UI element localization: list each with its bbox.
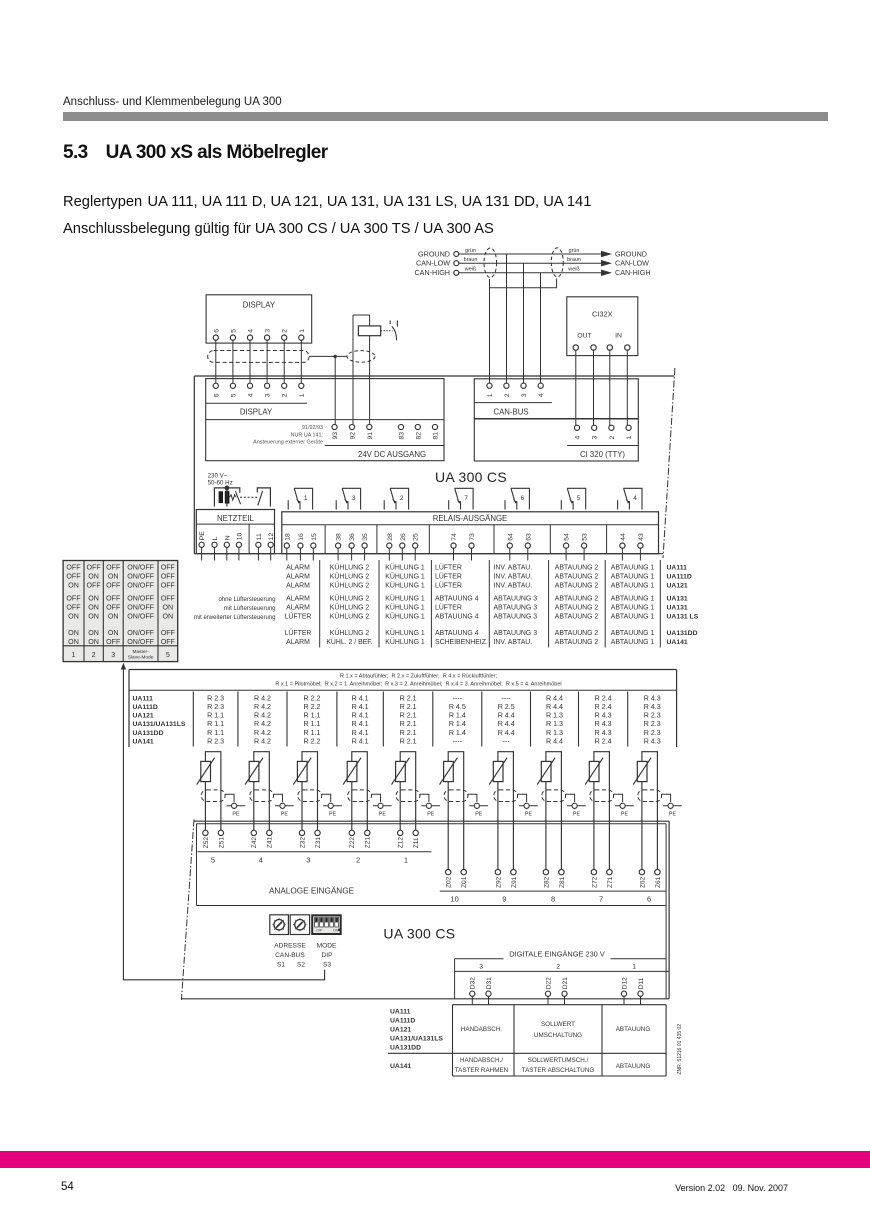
svg-text:OFF: OFF (161, 564, 176, 572)
svg-text:2: 2 (504, 393, 511, 397)
svg-text:R 4.2: R 4.2 (254, 737, 271, 745)
svg-text:2: 2 (92, 651, 96, 659)
svg-text:R 2.3: R 2.3 (644, 712, 661, 720)
svg-text:Z32: Z32 (299, 837, 306, 849)
svg-text:82: 82 (415, 432, 422, 440)
svg-text:OFF: OFF (161, 573, 176, 581)
svg-text:weiß: weiß (464, 267, 477, 273)
svg-text:OFF: OFF (66, 595, 81, 603)
svg-text:S3: S3 (323, 962, 331, 969)
svg-text:R 2.3: R 2.3 (644, 729, 661, 737)
svg-text:UA131DD: UA131DD (390, 1044, 421, 1051)
svg-text:2: 2 (400, 495, 404, 502)
svg-text:braun: braun (567, 257, 581, 263)
svg-text:OFF: OFF (106, 564, 121, 572)
svg-text:OFF: OFF (161, 595, 176, 603)
svg-text:ON: ON (68, 613, 79, 621)
svg-text:R 4.3: R 4.3 (644, 703, 661, 711)
svg-text:Z71: Z71 (607, 876, 614, 888)
svg-text:UA111D: UA111D (390, 1017, 415, 1024)
svg-text:R 2.3: R 2.3 (207, 694, 224, 702)
svg-text:R 4.4: R 4.4 (498, 712, 515, 720)
svg-text:ON: ON (88, 638, 99, 646)
svg-text:Z11: Z11 (413, 837, 420, 848)
svg-text:R 1.1: R 1.1 (207, 720, 224, 728)
svg-text:4: 4 (248, 329, 255, 333)
svg-text:9: 9 (502, 895, 506, 904)
svg-text:R 4.3: R 4.3 (644, 737, 661, 745)
svg-text:3: 3 (592, 436, 599, 440)
svg-text:KÜHLUNG 2: KÜHLUNG 2 (330, 573, 370, 581)
svg-text:PE: PE (281, 811, 289, 817)
svg-text:KÜHLUNG 1: KÜHLUNG 1 (385, 564, 425, 572)
svg-text:ohne Lüftersteuerung: ohne Lüftersteuerung (218, 597, 275, 603)
svg-text:2: 2 (282, 329, 289, 333)
svg-text:R 2.1: R 2.1 (400, 694, 417, 702)
svg-text:R 1.x = Abtaufühler; R 2.x =: R 1.x = Abtaufühler; R 2.x = Zuluftfühle… (340, 673, 497, 679)
svg-text:3: 3 (521, 393, 528, 397)
svg-text:Z72: Z72 (591, 876, 598, 888)
svg-text:3: 3 (265, 393, 272, 397)
svg-text:R x.1 = Pilotmöbel; R x.2 = 1: R x.1 = Pilotmöbel; R x.2 = 1. Anreihmöb… (275, 682, 561, 688)
svg-text:UA131 LS: UA131 LS (667, 614, 699, 621)
svg-text:ABTAUUNG 2: ABTAUUNG 2 (555, 605, 599, 612)
svg-text:R 4.3: R 4.3 (595, 720, 612, 728)
svg-text:R 2.5: R 2.5 (498, 703, 515, 711)
svg-text:3: 3 (352, 495, 356, 502)
svg-text:KÜHLUNG 1: KÜHLUNG 1 (385, 582, 425, 590)
svg-text:3: 3 (479, 964, 483, 971)
svg-text:HANDABSCH./: HANDABSCH./ (460, 1057, 503, 1064)
svg-text:UA111D: UA111D (667, 574, 692, 581)
svg-text:UA131/UA131LS: UA131/UA131LS (133, 721, 186, 728)
svg-text:grün: grün (569, 248, 580, 254)
svg-text:ON: ON (88, 604, 99, 612)
svg-text:CAN-LOW: CAN-LOW (416, 259, 450, 268)
svg-text:LÜFTER: LÜFTER (435, 573, 462, 581)
svg-text:ON: ON (108, 629, 119, 637)
svg-text:ALARM: ALARM (286, 639, 310, 646)
svg-text:UA121: UA121 (133, 713, 154, 720)
svg-text:KÜHLUNG 1: KÜHLUNG 1 (385, 638, 425, 646)
svg-text:ABTAUUNG 4: ABTAUUNG 4 (435, 596, 479, 603)
svg-text:Z12: Z12 (398, 837, 405, 849)
svg-text:ON/OFF: ON/OFF (127, 638, 154, 646)
svg-text:R 4.1: R 4.1 (352, 694, 369, 702)
svg-text:2: 2 (556, 964, 560, 971)
svg-text:UA141: UA141 (667, 639, 688, 646)
svg-text:ON: ON (88, 573, 99, 581)
svg-text:MODE: MODE (317, 942, 337, 949)
svg-text:R 2.1: R 2.1 (400, 737, 417, 745)
svg-text:Master-: Master- (132, 649, 149, 655)
svg-text:R 1.3: R 1.3 (546, 720, 563, 728)
svg-text:INV. ABTAU.: INV. ABTAU. (494, 574, 533, 581)
svg-text:CAN-HIGH: CAN-HIGH (414, 268, 450, 277)
svg-text:6: 6 (213, 393, 220, 397)
svg-text:Z52: Z52 (203, 837, 210, 849)
svg-text:PE: PE (573, 811, 581, 817)
svg-text:ABTAUUNG 3: ABTAUUNG 3 (494, 630, 538, 637)
svg-text:R 2.2: R 2.2 (304, 703, 321, 711)
svg-text:UA111D: UA111D (133, 704, 158, 711)
svg-text:SCHEIBENHEIZ.: SCHEIBENHEIZ. (435, 639, 488, 646)
svg-text:ALARM: ALARM (286, 565, 310, 572)
svg-text:R 1.4: R 1.4 (449, 720, 466, 728)
svg-text:KÜHL. 2 / BEF.: KÜHL. 2 / BEF. (326, 638, 372, 646)
svg-text:NETZTEIL: NETZTEIL (217, 514, 254, 523)
svg-text:----: ---- (453, 737, 463, 745)
svg-text:R 4.4: R 4.4 (498, 729, 515, 737)
svg-text:25: 25 (413, 533, 420, 541)
svg-text:PE: PE (199, 531, 206, 541)
svg-text:5: 5 (230, 329, 237, 333)
svg-text:74: 74 (451, 533, 458, 541)
svg-text:92: 92 (350, 432, 357, 440)
svg-text:KÜHLUNG 1: KÜHLUNG 1 (385, 573, 425, 581)
svg-text:R 2.2: R 2.2 (304, 694, 321, 702)
svg-text:weiß: weiß (567, 267, 580, 273)
svg-text:R 4.4: R 4.4 (546, 703, 563, 711)
svg-text:R 1.1: R 1.1 (207, 729, 224, 737)
svg-text:KÜHLUNG 1: KÜHLUNG 1 (385, 604, 425, 612)
svg-text:15: 15 (311, 533, 318, 541)
svg-text:R 2.2: R 2.2 (304, 737, 321, 745)
svg-text:UA121: UA121 (667, 583, 688, 590)
svg-text:R 2.4: R 2.4 (595, 694, 612, 702)
svg-text:R 4.3: R 4.3 (644, 694, 661, 702)
svg-text:DISPLAY: DISPLAY (243, 301, 276, 310)
svg-text:PE: PE (475, 811, 483, 817)
svg-text:R 2.1: R 2.1 (400, 712, 417, 720)
svg-text:8: 8 (551, 895, 555, 904)
svg-text:Z01: Z01 (461, 876, 468, 888)
svg-text:Ansteuerung externer Geräte: Ansteuerung externer Geräte (253, 440, 323, 446)
svg-text:INV. ABTAU.: INV. ABTAU. (494, 565, 533, 572)
svg-text:TASTER RAHMEN: TASTER RAHMEN (455, 1067, 509, 1074)
svg-text:R 2.3: R 2.3 (207, 703, 224, 711)
svg-text:PE: PE (621, 811, 629, 817)
svg-text:ABTAUUNG 2: ABTAUUNG 2 (555, 565, 599, 572)
svg-text:ON: ON (162, 604, 173, 612)
svg-text:S1: S1 (277, 962, 285, 969)
svg-text:ABTAUUNG 1: ABTAUUNG 1 (611, 614, 655, 621)
svg-text:ON/OFF: ON/OFF (127, 582, 154, 590)
svg-text:R 2.3: R 2.3 (207, 737, 224, 745)
svg-text:5: 5 (577, 495, 581, 502)
svg-text:OFF: OFF (161, 638, 176, 646)
svg-text:N: N (224, 535, 231, 540)
svg-text:R 4.2: R 4.2 (254, 712, 271, 720)
svg-text:GROUND: GROUND (615, 249, 647, 258)
svg-text:ON: ON (88, 595, 99, 603)
svg-text:D22: D22 (545, 977, 552, 989)
svg-text:Z42: Z42 (251, 837, 258, 849)
svg-text:ABTAUUNG 1: ABTAUUNG 1 (611, 605, 655, 612)
svg-text:11: 11 (256, 533, 263, 540)
svg-text:6: 6 (521, 495, 525, 502)
svg-text:ABTAUUNG 1: ABTAUUNG 1 (611, 596, 655, 603)
svg-text:R 4.4: R 4.4 (546, 694, 563, 702)
svg-text:Z02: Z02 (446, 876, 453, 888)
svg-text:HANDABSCH.: HANDABSCH. (461, 1026, 503, 1033)
svg-text:5: 5 (211, 855, 215, 864)
svg-text:SOLLWERT: SOLLWERT (541, 1021, 575, 1028)
svg-text:ON: ON (88, 629, 99, 637)
svg-text:INV. ABTAU.: INV. ABTAU. (494, 639, 533, 646)
svg-text:UMSCHALTUNG: UMSCHALTUNG (534, 1032, 582, 1039)
svg-text:18: 18 (284, 533, 291, 541)
svg-text:ABTAUUNG 1: ABTAUUNG 1 (611, 630, 655, 637)
svg-text:5: 5 (230, 393, 237, 397)
svg-text:R 2.1: R 2.1 (400, 729, 417, 737)
svg-text:4: 4 (575, 436, 582, 440)
svg-text:1: 1 (632, 964, 636, 971)
svg-text:54: 54 (564, 533, 571, 541)
svg-text:7: 7 (464, 495, 468, 502)
svg-text:S2: S2 (297, 962, 305, 969)
svg-text:ON: ON (162, 613, 173, 621)
svg-text:R 1.1: R 1.1 (304, 729, 321, 737)
svg-text:35: 35 (362, 533, 369, 541)
svg-text:3: 3 (265, 329, 272, 333)
svg-text:26: 26 (400, 533, 407, 541)
svg-text:28: 28 (387, 533, 394, 541)
svg-text:R 4.1: R 4.1 (352, 712, 369, 720)
svg-text:OFF: OFF (66, 564, 81, 572)
svg-text:Z51: Z51 (218, 837, 225, 849)
svg-text:CAN-HIGH: CAN-HIGH (615, 268, 651, 277)
svg-text:43: 43 (638, 533, 645, 541)
svg-text:1: 1 (72, 651, 76, 659)
svg-text:LÜFTER: LÜFTER (435, 604, 462, 612)
svg-text:TASTER ABSCHALTUNG: TASTER ABSCHALTUNG (522, 1067, 595, 1074)
svg-text:Z61: Z61 (655, 876, 662, 888)
svg-text:R 4.4: R 4.4 (546, 737, 563, 745)
svg-text:R 1.1: R 1.1 (207, 712, 224, 720)
svg-text:Z22: Z22 (349, 837, 356, 849)
svg-text:1: 1 (487, 393, 494, 397)
svg-text:UA131: UA131 (667, 596, 688, 603)
svg-text:CAN-BUS: CAN-BUS (493, 408, 528, 417)
svg-text:R 4.1: R 4.1 (352, 720, 369, 728)
svg-text:ABTAUUNG 2: ABTAUUNG 2 (555, 596, 599, 603)
svg-text:OFF: OFF (161, 629, 176, 637)
svg-text:R 2.1: R 2.1 (400, 703, 417, 711)
svg-text:OFF: OFF (106, 604, 121, 612)
svg-text:R 4.3: R 4.3 (595, 712, 612, 720)
svg-text:UA141: UA141 (133, 738, 154, 745)
svg-text:D32: D32 (470, 977, 477, 989)
svg-text:OFF: OFF (106, 595, 121, 603)
svg-text:ABTAUUNG 4: ABTAUUNG 4 (435, 630, 479, 637)
svg-text:D11: D11 (638, 977, 645, 989)
svg-text:R 4.5: R 4.5 (449, 703, 466, 711)
svg-text:3: 3 (306, 855, 310, 864)
svg-text:93: 93 (332, 432, 339, 440)
svg-text:16: 16 (298, 533, 305, 541)
svg-text:ANALOGE EINGÄNGE: ANALOGE EINGÄNGE (269, 886, 355, 896)
svg-text:81: 81 (433, 432, 440, 440)
svg-text:5: 5 (166, 651, 170, 659)
svg-text:KÜHLUNG 2: KÜHLUNG 2 (330, 582, 370, 590)
svg-text:UA111: UA111 (667, 565, 688, 572)
svg-text:Z82: Z82 (543, 876, 550, 888)
svg-text:Z81: Z81 (559, 876, 566, 888)
svg-text:1: 1 (626, 436, 633, 440)
svg-text:ON: ON (68, 582, 79, 590)
svg-text:ADRESSE: ADRESSE (274, 942, 306, 949)
svg-text:50-60 Hz: 50-60 Hz (208, 480, 233, 487)
svg-text:UA141: UA141 (390, 1063, 411, 1070)
svg-text:DIP: DIP (317, 929, 323, 933)
svg-text:UA111: UA111 (133, 695, 154, 702)
svg-text:ON: ON (108, 613, 119, 621)
svg-text:ABTAUUNG 2: ABTAUUNG 2 (555, 639, 599, 646)
svg-text:D21: D21 (562, 977, 569, 989)
svg-text:----: ---- (453, 694, 463, 702)
svg-text:CI32X: CI32X (592, 310, 613, 319)
svg-text:63: 63 (525, 533, 532, 541)
svg-text:Z31: Z31 (315, 837, 322, 849)
svg-text:SOLLWERTUMSCH./: SOLLWERTUMSCH./ (528, 1057, 589, 1064)
svg-text:CAN-LOW: CAN-LOW (615, 259, 649, 268)
svg-text:10: 10 (236, 533, 243, 541)
svg-text:OFF: OFF (87, 564, 102, 572)
svg-text:R 2.1: R 2.1 (400, 720, 417, 728)
svg-text:91: 91 (367, 432, 374, 440)
svg-text:64: 64 (507, 533, 514, 541)
svg-text:R 4.2: R 4.2 (254, 720, 271, 728)
svg-text:R 4.3: R 4.3 (595, 729, 612, 737)
svg-text:230 V~: 230 V~ (208, 472, 228, 479)
svg-text:38: 38 (336, 533, 343, 541)
svg-text:LÜFTER: LÜFTER (285, 613, 312, 621)
svg-text:UA 300 CS: UA 300 CS (435, 469, 507, 485)
svg-text:R 1.1: R 1.1 (304, 712, 321, 720)
svg-text:ABTAUUNG 2: ABTAUUNG 2 (555, 574, 599, 581)
svg-text:ON: ON (88, 613, 99, 621)
svg-text:KÜHLUNG 2: KÜHLUNG 2 (330, 595, 370, 603)
svg-text:ON/OFF: ON/OFF (127, 604, 154, 612)
svg-text:ALARM: ALARM (286, 583, 310, 590)
svg-text:ABTAUUNG: ABTAUUNG (616, 1063, 651, 1070)
svg-text:LÜFTER: LÜFTER (285, 629, 312, 637)
svg-text:---: --- (503, 737, 511, 745)
svg-text:OFF: OFF (87, 582, 102, 590)
svg-text:PE: PE (379, 811, 387, 817)
svg-text:53: 53 (582, 533, 589, 541)
svg-text:UA121: UA121 (390, 1026, 411, 1033)
svg-text:mit erweiterter Lüftersteuerun: mit erweiterter Lüftersteuerung (194, 615, 276, 621)
svg-text:INV. ABTAU.: INV. ABTAU. (494, 583, 533, 590)
svg-text:grün: grün (465, 248, 476, 254)
svg-text:ON/OFF: ON/OFF (127, 564, 154, 572)
svg-text:NUR UA 141:: NUR UA 141: (291, 432, 323, 438)
svg-text:KÜHLUNG 2: KÜHLUNG 2 (330, 613, 370, 621)
svg-text:OFF: OFF (106, 638, 121, 646)
svg-text:PE: PE (525, 811, 533, 817)
svg-text:R 4.4: R 4.4 (498, 720, 515, 728)
svg-text:R 1.4: R 1.4 (449, 712, 466, 720)
svg-text:ON/OFF: ON/OFF (127, 613, 154, 621)
svg-text:Z91: Z91 (511, 876, 518, 888)
svg-text:PE: PE (232, 811, 240, 817)
svg-text:ABTAUUNG 3: ABTAUUNG 3 (494, 605, 538, 612)
svg-text:4: 4 (248, 393, 255, 397)
svg-text:12: 12 (268, 533, 275, 541)
svg-text:KÜHLUNG 2: KÜHLUNG 2 (330, 629, 370, 637)
svg-text:Z62: Z62 (639, 876, 646, 888)
svg-text:6: 6 (647, 895, 651, 904)
svg-text:R 4.1: R 4.1 (352, 737, 369, 745)
svg-text:R 2.4: R 2.4 (595, 703, 612, 711)
svg-text:Z92: Z92 (495, 876, 502, 888)
svg-text:D31: D31 (486, 977, 493, 989)
svg-text:UA131DD: UA131DD (667, 630, 698, 637)
svg-text:----: ---- (501, 694, 511, 702)
svg-text:44: 44 (620, 533, 627, 541)
svg-text:R 4.1: R 4.1 (352, 729, 369, 737)
svg-text:PE: PE (329, 811, 337, 817)
svg-text:ON: ON (108, 573, 119, 581)
svg-text:2: 2 (356, 855, 360, 864)
svg-text:R 4.2: R 4.2 (254, 703, 271, 711)
svg-text:KÜHLUNG 1: KÜHLUNG 1 (385, 595, 425, 603)
svg-text:UA 300 CS: UA 300 CS (383, 926, 455, 942)
svg-text:mit Lüftersteuerung: mit Lüftersteuerung (224, 606, 276, 612)
svg-text:2: 2 (609, 436, 616, 440)
svg-text:4: 4 (538, 393, 545, 397)
svg-text:KÜHLUNG 1: KÜHLUNG 1 (385, 613, 425, 621)
svg-text:GROUND: GROUND (418, 249, 450, 258)
svg-text:CI 320 (TTY): CI 320 (TTY) (580, 450, 625, 459)
svg-text:R 2.4: R 2.4 (595, 737, 612, 745)
svg-text:UA111: UA111 (390, 1008, 411, 1015)
svg-text:Z41: Z41 (267, 837, 274, 849)
svg-text:ABTAUUNG 4: ABTAUUNG 4 (435, 614, 479, 621)
svg-text:KÜHLUNG 2: KÜHLUNG 2 (330, 564, 370, 572)
svg-text:4: 4 (259, 855, 263, 864)
svg-text:1: 1 (404, 855, 408, 864)
svg-text:ABTAUUNG 2: ABTAUUNG 2 (555, 630, 599, 637)
svg-text:LÜFTER: LÜFTER (435, 564, 462, 572)
svg-text:OFF: OFF (66, 604, 81, 612)
svg-text:DIP: DIP (322, 952, 334, 959)
svg-text:ALARM: ALARM (286, 596, 310, 603)
svg-text:L: L (212, 536, 219, 540)
svg-text:KÜHLUNG 2: KÜHLUNG 2 (330, 604, 370, 612)
svg-text:1: 1 (304, 495, 308, 502)
svg-text:UA131/UA131LS: UA131/UA131LS (390, 1035, 443, 1042)
svg-text:OFF: OFF (66, 573, 81, 581)
svg-text:7: 7 (599, 895, 603, 904)
svg-text:R 1.3: R 1.3 (546, 729, 563, 737)
svg-text:ABTAUUNG: ABTAUUNG (616, 1026, 651, 1033)
svg-text:DIGITALE EINGÄNGE 230 V: DIGITALE EINGÄNGE 230 V (509, 949, 605, 958)
svg-text:OFF: OFF (106, 582, 121, 590)
svg-text:ON: ON (68, 629, 79, 637)
svg-text:83: 83 (399, 432, 406, 440)
svg-text:KÜHLUNG 1: KÜHLUNG 1 (385, 629, 425, 637)
svg-text:10: 10 (450, 895, 458, 904)
svg-text:36: 36 (349, 533, 356, 541)
svg-text:2: 2 (282, 393, 289, 397)
svg-text:1: 1 (299, 393, 306, 397)
svg-text:ALARM: ALARM (286, 574, 310, 581)
svg-text:DISPLAY: DISPLAY (240, 408, 273, 417)
svg-text:RELAIS-AUSGÄNGE: RELAIS-AUSGÄNGE (433, 514, 508, 523)
